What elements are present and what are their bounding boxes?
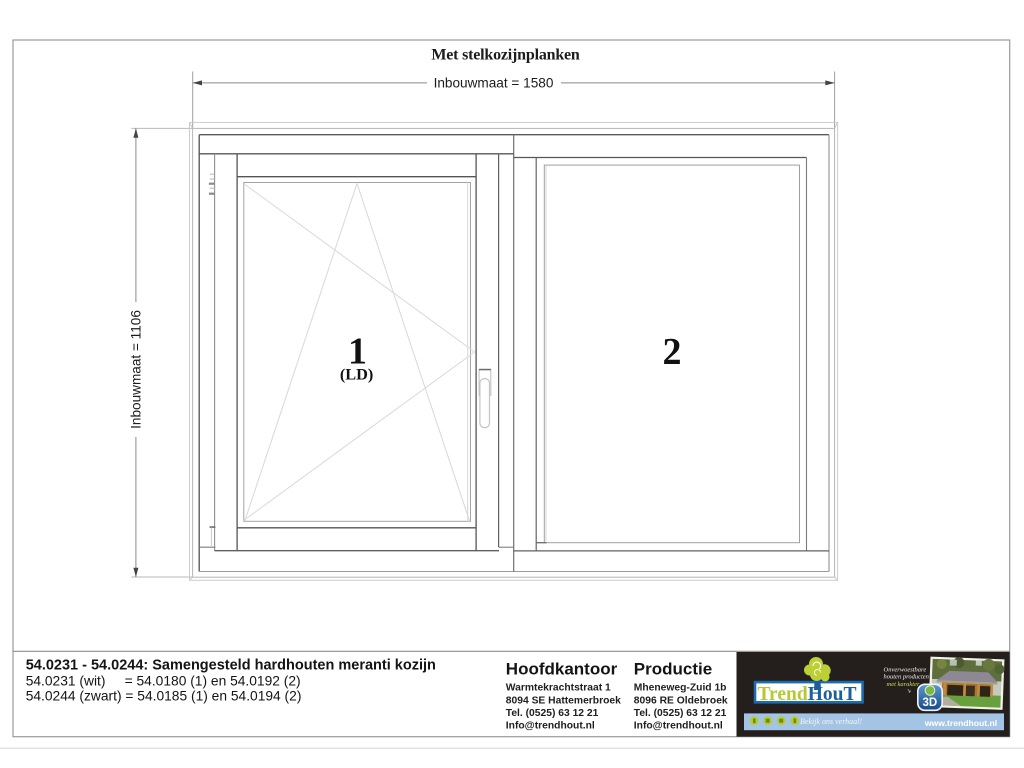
svg-text:Productie: Productie — [634, 659, 712, 678]
svg-text:3D: 3D — [922, 697, 937, 709]
svg-text:Onverwoestbare: Onverwoestbare — [884, 666, 927, 673]
svg-text:Info@trendhout.nl: Info@trendhout.nl — [634, 720, 723, 731]
svg-text:Met stelkozijnplanken: Met stelkozijnplanken — [431, 47, 580, 64]
svg-text:Tel. (0525) 63 12 21: Tel. (0525) 63 12 21 — [506, 708, 599, 719]
svg-text:houten producten: houten producten — [884, 674, 929, 681]
svg-text:54.0244 (zwart) = 54.0185 (1): 54.0244 (zwart) = 54.0185 (1) en 54.0194… — [26, 688, 302, 703]
svg-text:Inbouwmaat = 1580: Inbouwmaat = 1580 — [434, 76, 554, 91]
svg-text:Hoofdkantoor: Hoofdkantoor — [506, 659, 618, 678]
svg-text:2: 2 — [663, 331, 682, 373]
svg-text:www.trendhout.nl: www.trendhout.nl — [924, 718, 997, 728]
svg-text:54.0231 (wit) = 54.0180 (1: 54.0231 (wit) = 54.0180 (1) en 54.0192 (… — [26, 673, 301, 688]
svg-text:8096 RE Oldebroek: 8096 RE Oldebroek — [634, 696, 728, 707]
svg-text:Tel. (0525) 63 12 21: Tel. (0525) 63 12 21 — [634, 708, 727, 719]
svg-text:TrendHouT: TrendHouT — [758, 684, 857, 705]
svg-text:Warmtekrachtstraat 1: Warmtekrachtstraat 1 — [506, 683, 611, 694]
svg-text:(LD): (LD) — [340, 365, 373, 384]
svg-text:Bekijk ons verhaal!: Bekijk ons verhaal! — [800, 717, 862, 726]
svg-text:Info@trendhout.nl: Info@trendhout.nl — [506, 720, 595, 731]
svg-text:8094 SE Hattemerbroek: 8094 SE Hattemerbroek — [506, 696, 621, 707]
svg-text:met karakter: met karakter — [887, 681, 921, 688]
svg-text:Mheneweg-Zuid 1b: Mheneweg-Zuid 1b — [634, 683, 727, 694]
svg-text:54.0231 - 54.0244: Samengestel: 54.0231 - 54.0244: Samengesteld hardhout… — [26, 658, 436, 674]
svg-text:↘: ↘ — [906, 689, 911, 695]
svg-text:Inbouwmaat = 1106: Inbouwmaat = 1106 — [128, 310, 143, 429]
